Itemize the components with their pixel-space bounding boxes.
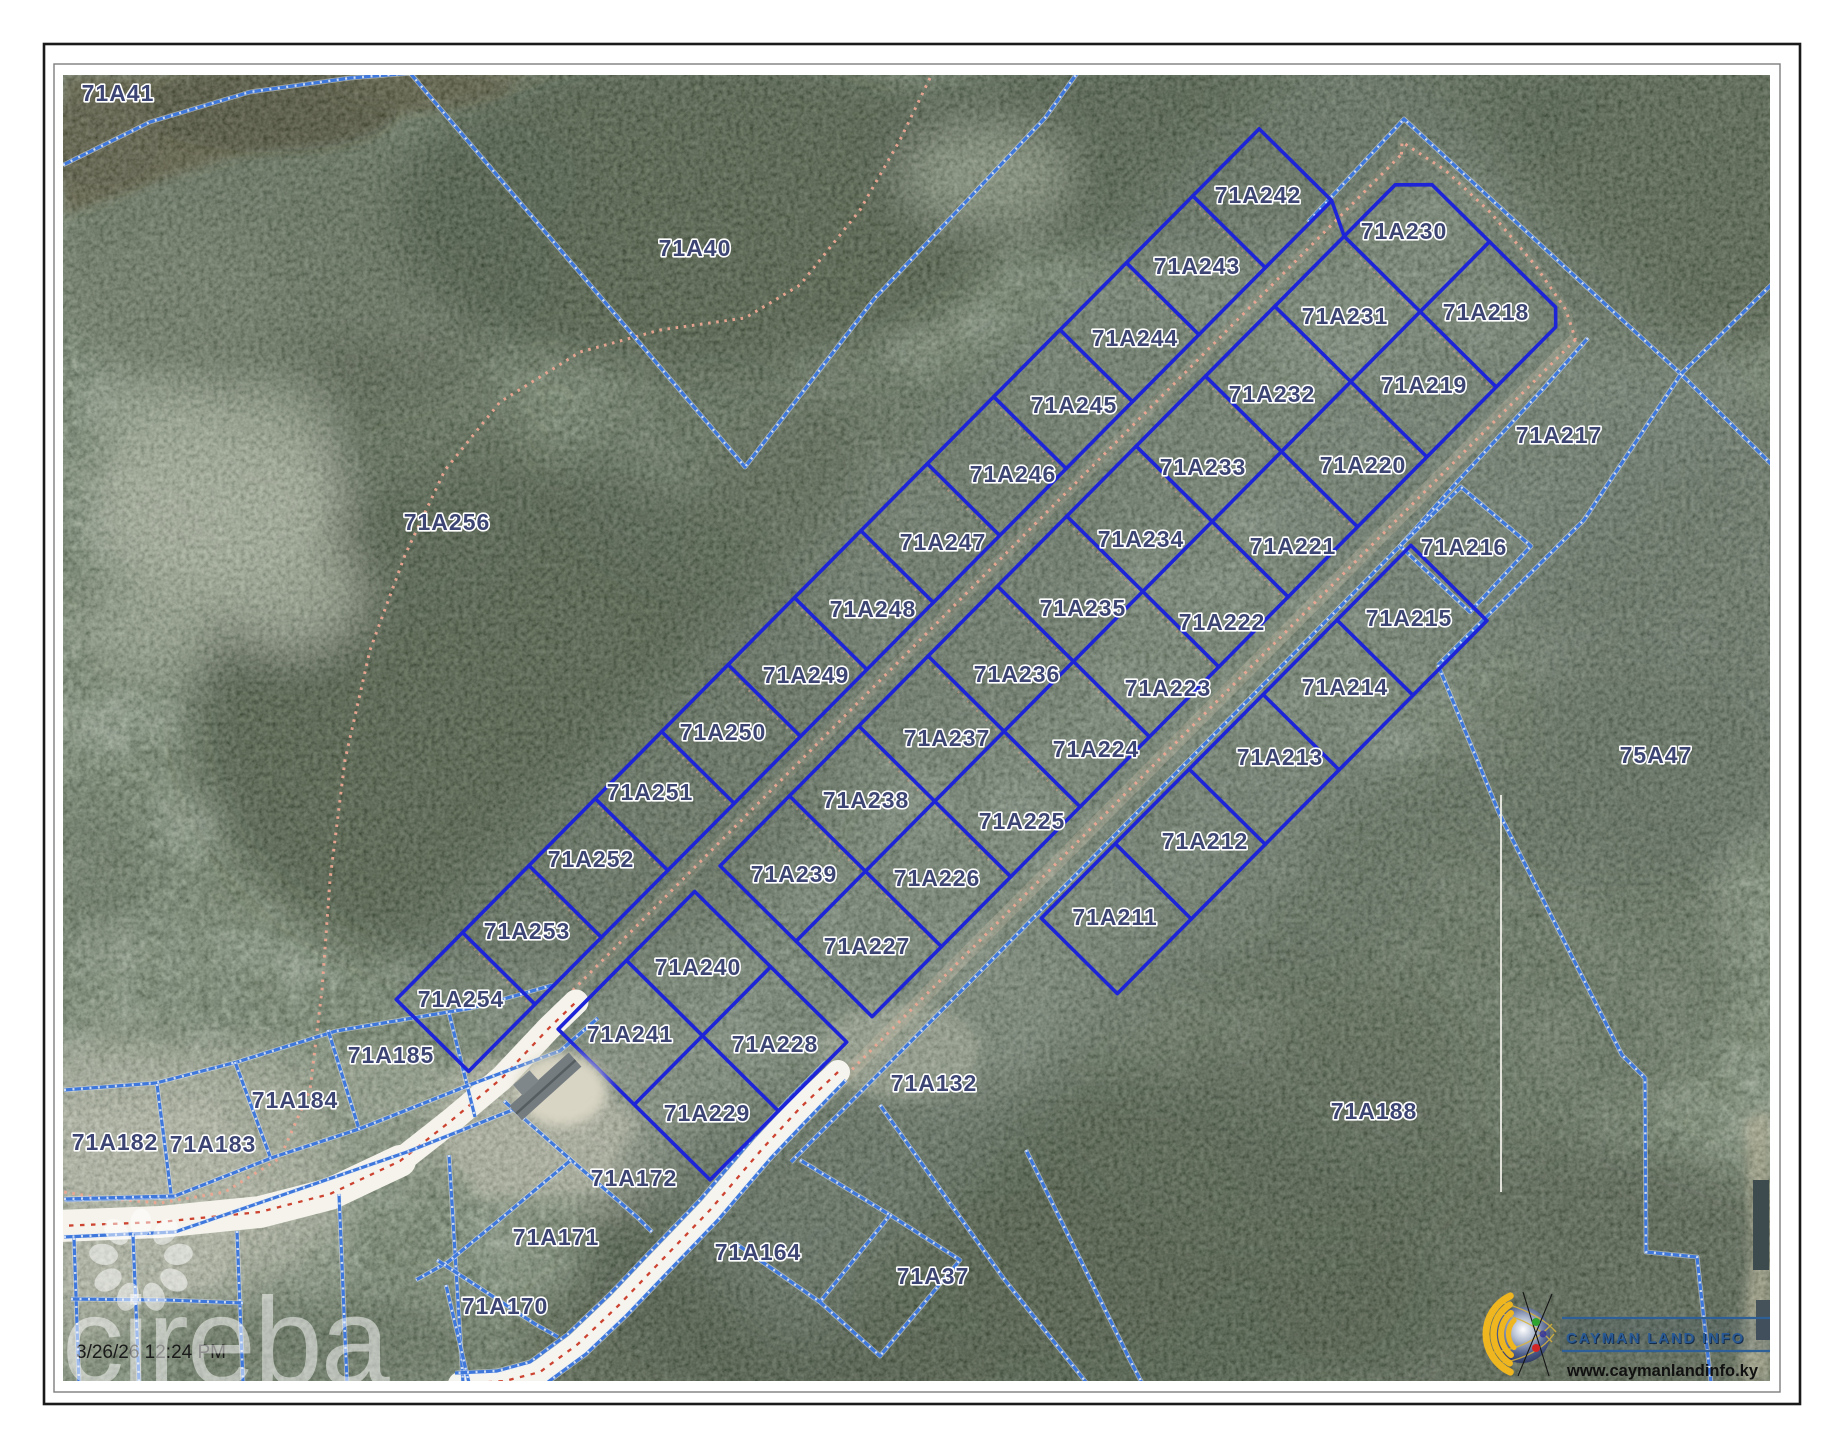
svg-text:71A251: 71A251 (607, 779, 694, 805)
svg-text:71A225: 71A225 (979, 808, 1066, 834)
svg-text:71A235: 71A235 (1040, 595, 1127, 621)
svg-text:71A231: 71A231 (1302, 303, 1389, 329)
svg-text:71A254: 71A254 (418, 986, 505, 1012)
svg-text:71A221: 71A221 (1250, 533, 1337, 559)
svg-text:71A182: 71A182 (72, 1129, 159, 1155)
svg-text:71A183: 71A183 (170, 1131, 257, 1157)
svg-text:71A132: 71A132 (891, 1070, 978, 1096)
svg-text:71A241: 71A241 (587, 1021, 674, 1047)
svg-text:71A214: 71A214 (1302, 674, 1389, 700)
svg-text:71A245: 71A245 (1031, 392, 1118, 418)
svg-text:71A222: 71A222 (1179, 609, 1266, 635)
svg-text:71A232: 71A232 (1229, 381, 1316, 407)
svg-text:71A217: 71A217 (1516, 422, 1603, 448)
svg-text:71A248: 71A248 (830, 596, 917, 622)
svg-text:71A41: 71A41 (82, 80, 155, 106)
svg-text:71A172: 71A172 (591, 1165, 678, 1191)
svg-text:71A37: 71A37 (897, 1263, 970, 1289)
svg-text:71A238: 71A238 (823, 787, 910, 813)
svg-text:71A226: 71A226 (894, 865, 981, 891)
svg-text:71A234: 71A234 (1098, 526, 1185, 552)
svg-text:71A237: 71A237 (904, 725, 991, 751)
svg-text:71A247: 71A247 (900, 529, 987, 555)
svg-text:71A242: 71A242 (1215, 182, 1302, 208)
svg-text:71A240: 71A240 (655, 954, 742, 980)
svg-text:71A170: 71A170 (462, 1293, 549, 1319)
svg-text:www.caymanlandinfo.ky: www.caymanlandinfo.ky (1566, 1362, 1759, 1380)
svg-text:71A233: 71A233 (1160, 454, 1247, 480)
svg-text:71A239: 71A239 (751, 861, 838, 887)
svg-text:71A220: 71A220 (1320, 452, 1407, 478)
svg-text:71A171: 71A171 (513, 1224, 600, 1250)
svg-text:71A230: 71A230 (1361, 218, 1448, 244)
svg-text:71A253: 71A253 (484, 918, 571, 944)
svg-text:71A224: 71A224 (1053, 736, 1140, 762)
svg-text:71A188: 71A188 (1331, 1098, 1418, 1124)
svg-text:71A211: 71A211 (1072, 904, 1157, 930)
svg-text:71A164: 71A164 (715, 1239, 802, 1265)
svg-text:CAYMAN LAND INFO: CAYMAN LAND INFO (1566, 1330, 1745, 1347)
svg-text:71A213: 71A213 (1237, 744, 1324, 770)
svg-text:71A246: 71A246 (970, 461, 1057, 487)
svg-text:75A47: 75A47 (1620, 742, 1693, 768)
svg-text:71A243: 71A243 (1154, 253, 1241, 279)
svg-text:71A249: 71A249 (763, 662, 850, 688)
svg-text:71A236: 71A236 (974, 661, 1061, 687)
svg-text:71A212: 71A212 (1162, 828, 1249, 854)
svg-text:71A40: 71A40 (659, 235, 732, 261)
svg-text:71A219: 71A219 (1381, 372, 1468, 398)
svg-text:71A216: 71A216 (1421, 534, 1508, 560)
svg-text:71A244: 71A244 (1092, 325, 1179, 351)
svg-text:71A256: 71A256 (404, 509, 491, 535)
svg-text:71A229: 71A229 (664, 1100, 751, 1126)
svg-text:71A250: 71A250 (680, 719, 767, 745)
svg-text:71A227: 71A227 (824, 933, 911, 959)
svg-text:71A185: 71A185 (348, 1042, 435, 1068)
svg-text:71A228: 71A228 (732, 1031, 819, 1057)
svg-text:71A252: 71A252 (548, 846, 635, 872)
svg-text:71A223: 71A223 (1125, 675, 1212, 701)
svg-text:71A218: 71A218 (1443, 299, 1530, 325)
svg-text:71A184: 71A184 (252, 1087, 339, 1113)
svg-text:71A215: 71A215 (1366, 605, 1453, 631)
